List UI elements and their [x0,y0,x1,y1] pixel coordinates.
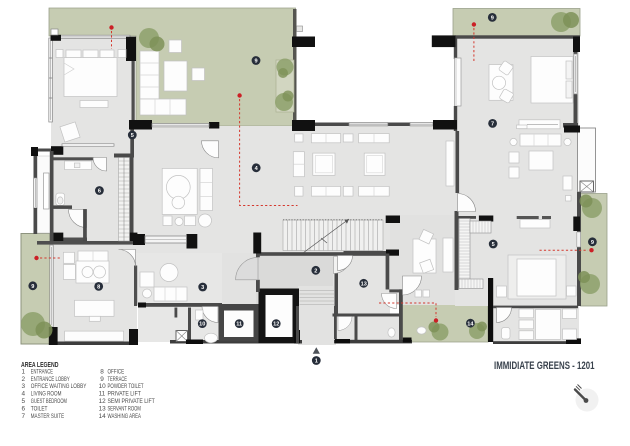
svg-text:14: 14 [99,413,107,420]
svg-text:MASTER SUITE: MASTER SUITE [31,413,64,420]
svg-text:2: 2 [314,268,317,274]
svg-text:3: 3 [201,285,204,291]
svg-text:4: 4 [22,391,26,398]
svg-text:SEMI PRIVATE LIFT: SEMI PRIVATE LIFT [108,398,155,405]
svg-text:3: 3 [22,383,26,390]
svg-text:LIVING ROOM: LIVING ROOM [31,391,62,398]
svg-text:13: 13 [99,405,107,412]
svg-text:GUEST BEDROOM: GUEST BEDROOM [31,398,67,405]
svg-text:7: 7 [491,122,494,128]
svg-text:9: 9 [591,240,594,246]
svg-text:5: 5 [131,133,134,139]
svg-text:14: 14 [467,321,474,327]
svg-text:1: 1 [315,359,318,365]
svg-text:10: 10 [99,383,107,390]
svg-text:POWDER TOILET: POWDER TOILET [108,383,144,390]
svg-text:TERRACE: TERRACE [108,376,128,383]
svg-text:13: 13 [361,281,367,287]
svg-text:6: 6 [22,405,26,412]
svg-text:2: 2 [22,376,26,383]
svg-text:1: 1 [22,368,26,375]
svg-text:OFFICE: OFFICE [108,368,125,375]
svg-text:ENTRANCE: ENTRANCE [31,368,53,375]
svg-text:5: 5 [492,242,495,248]
svg-text:12: 12 [273,322,279,328]
svg-text:PRIVATE LIFT: PRIVATE LIFT [108,391,141,398]
svg-text:WASHING AREA: WASHING AREA [108,413,142,420]
svg-text:9: 9 [254,59,257,65]
svg-text:9: 9 [100,376,104,383]
svg-text:8: 8 [100,368,104,375]
svg-text:ENTRANCE LOBBY: ENTRANCE LOBBY [31,376,70,383]
svg-text:9: 9 [491,16,494,22]
svg-text:11: 11 [236,322,242,328]
svg-text:9: 9 [31,284,34,290]
svg-text:OFFICE WAITING LOBBY: OFFICE WAITING LOBBY [31,383,87,390]
svg-text:6: 6 [98,189,101,195]
svg-text:12: 12 [99,398,107,405]
svg-text:10: 10 [199,322,205,328]
svg-text:TOILET: TOILET [31,405,48,412]
svg-text:SERVANT ROOM: SERVANT ROOM [108,405,141,412]
svg-text:5: 5 [22,398,26,405]
svg-text:7: 7 [22,413,26,420]
svg-text:8: 8 [97,285,100,291]
svg-text:11: 11 [99,391,106,398]
svg-text:IMMIDIATE GREENS - 1201: IMMIDIATE GREENS - 1201 [494,360,595,372]
